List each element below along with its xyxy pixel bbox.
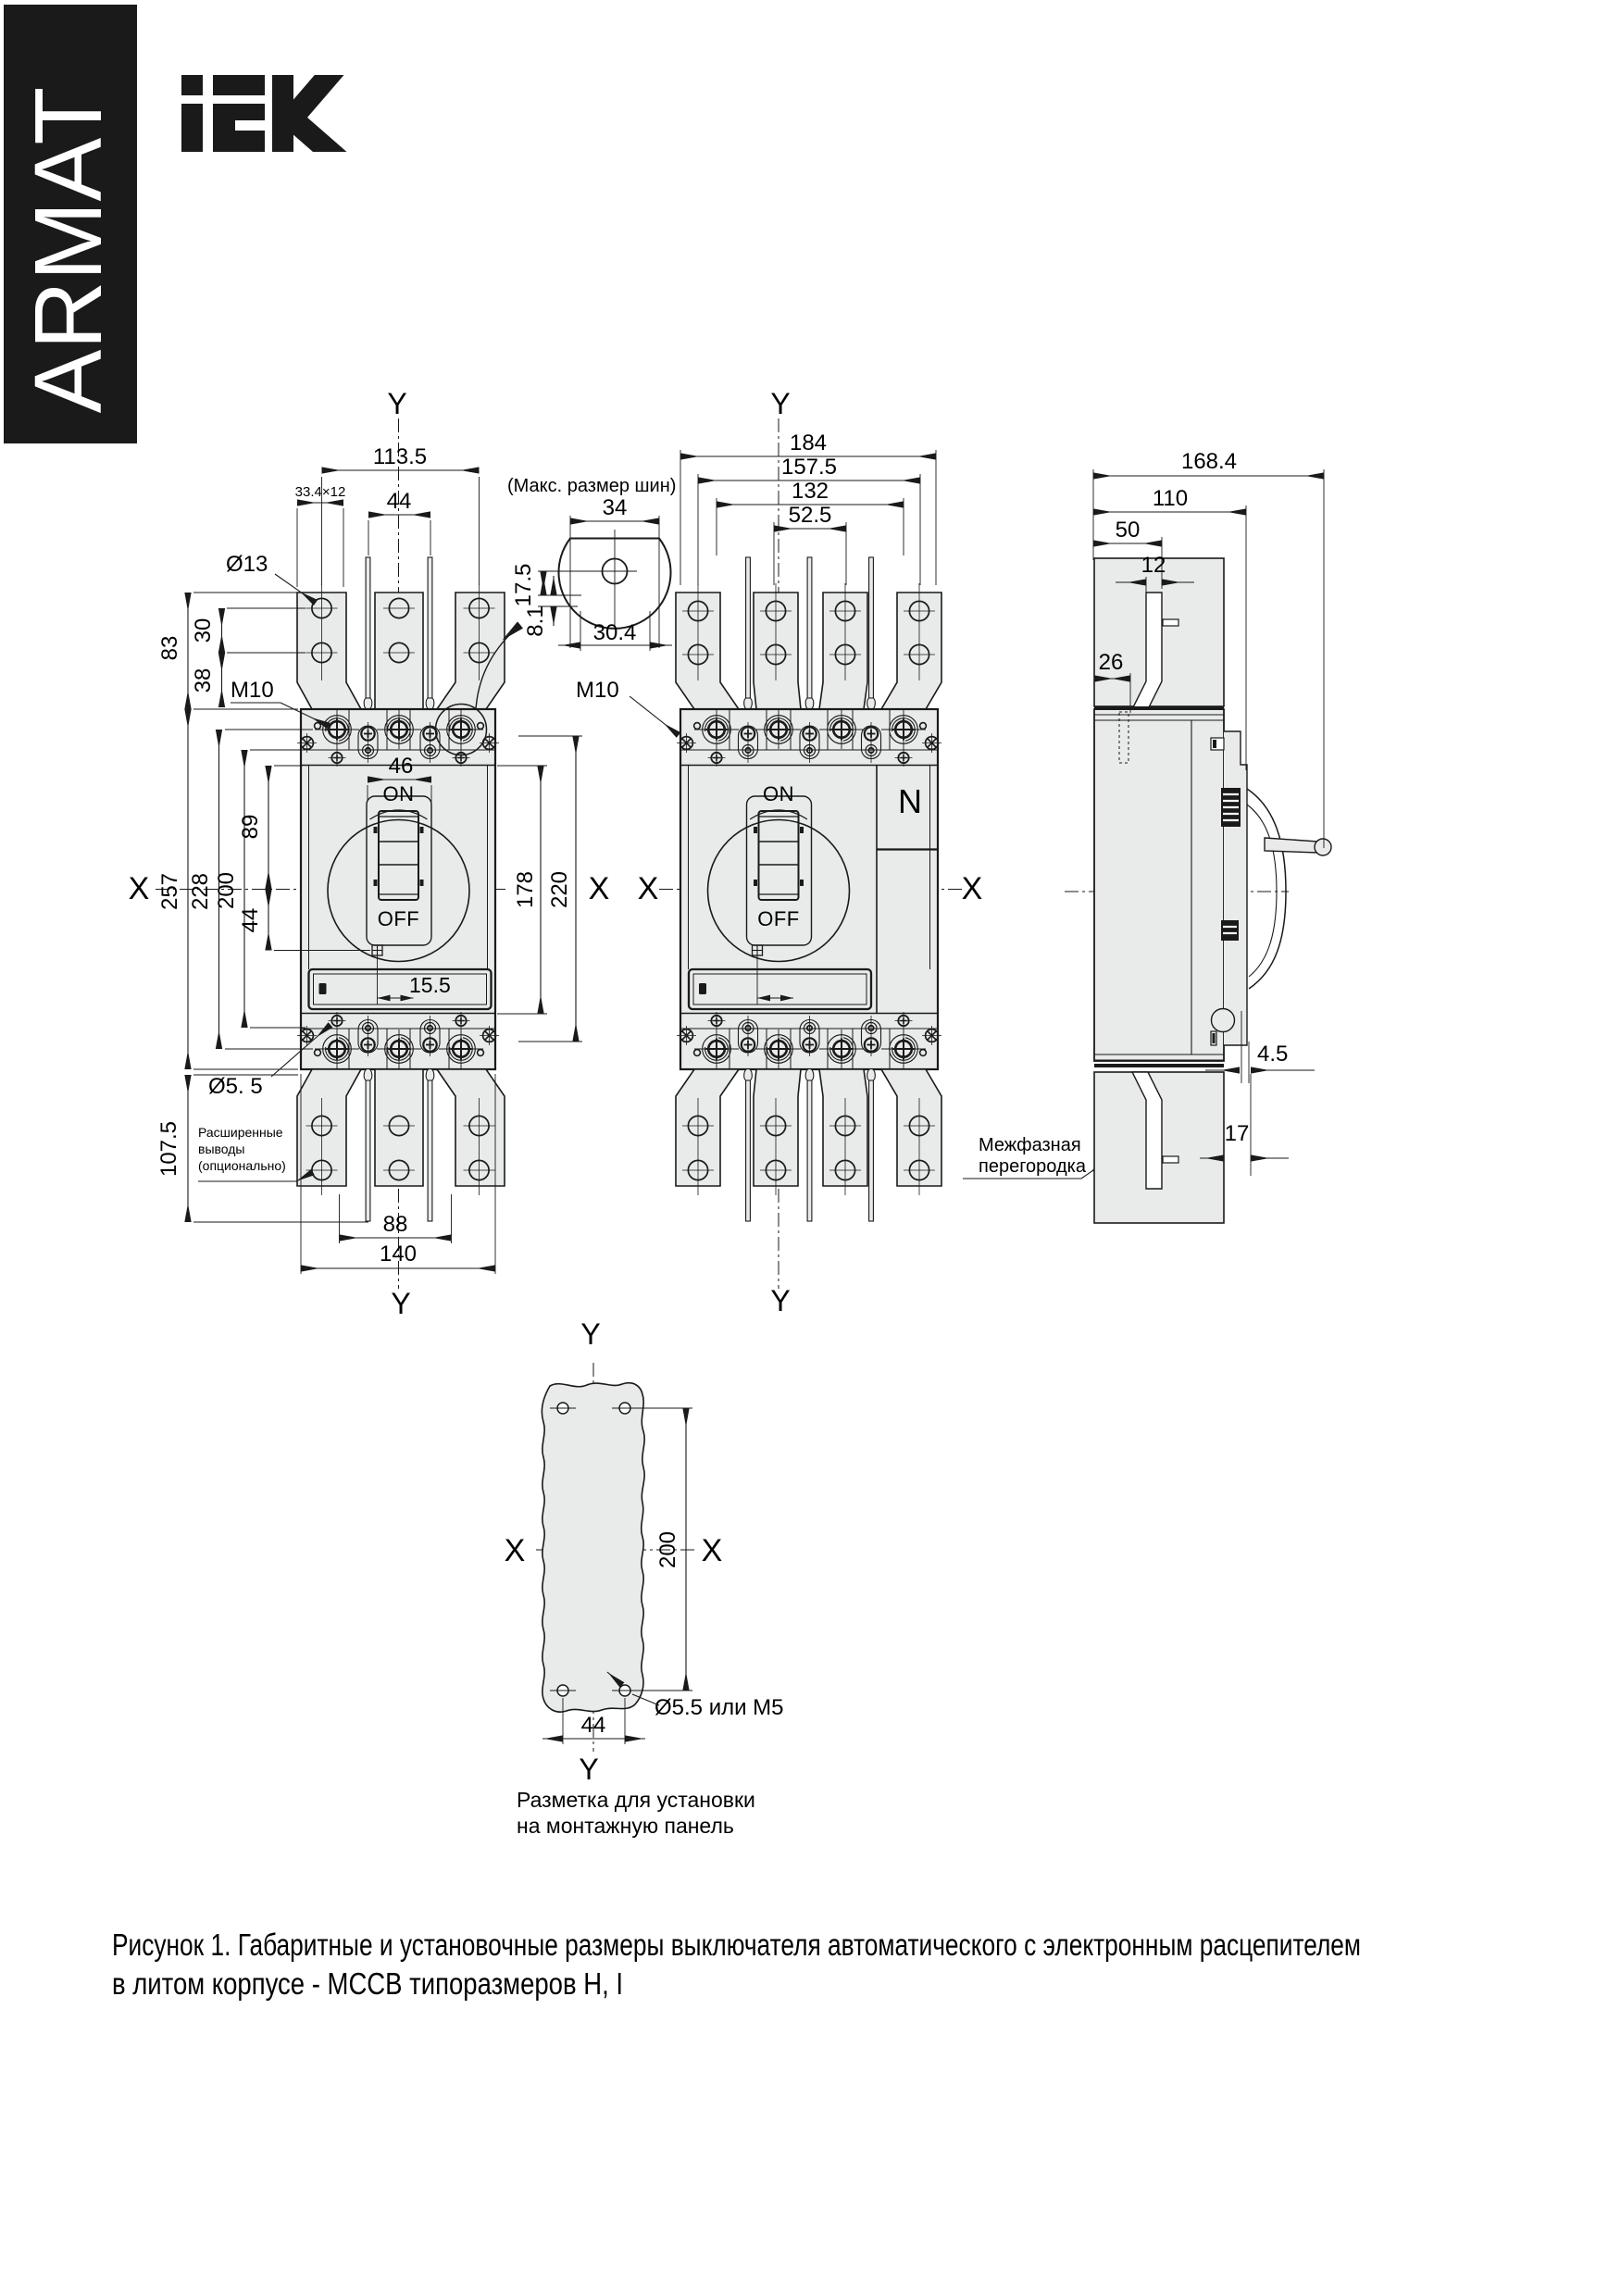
svg-text:113.5: 113.5 [373, 444, 427, 469]
svg-text:132: 132 [792, 479, 829, 504]
svg-text:88: 88 [383, 1212, 408, 1237]
svg-text:228: 228 [188, 873, 213, 910]
svg-text:46: 46 [389, 754, 414, 779]
svg-text:107.5: 107.5 [156, 1121, 181, 1177]
svg-text:Y: Y [770, 1284, 790, 1317]
svg-text:X: X [589, 871, 610, 906]
svg-text:157.5: 157.5 [781, 455, 837, 480]
svg-text:X: X [962, 871, 983, 906]
svg-text:(Макс. размер шин): (Макс. размер шин) [507, 476, 676, 496]
svg-text:в литом корпусе - МССВ типораз: в литом корпусе - МССВ типоразмеров H, I [112, 1966, 623, 2001]
svg-text:50: 50 [1116, 518, 1141, 543]
svg-text:на монтажную панель: на монтажную панель [517, 1814, 734, 1838]
svg-text:M10: M10 [231, 678, 274, 703]
svg-text:200: 200 [655, 1531, 680, 1568]
svg-text:30: 30 [191, 618, 216, 643]
svg-text:89: 89 [238, 815, 263, 840]
svg-text:8.1: 8.1 [523, 605, 548, 636]
svg-text:Разметка для установки: Разметка для установки [517, 1788, 755, 1812]
svg-text:(опционально): (опционально) [198, 1158, 286, 1173]
svg-text:Y: Y [770, 387, 790, 420]
svg-text:257: 257 [157, 873, 182, 910]
svg-text:Ø5. 5: Ø5. 5 [208, 1074, 263, 1099]
svg-text:4.5: 4.5 [1257, 1042, 1288, 1067]
svg-text:Y: Y [580, 1317, 600, 1351]
svg-text:17.5: 17.5 [511, 564, 536, 607]
svg-text:26: 26 [1099, 650, 1124, 675]
svg-text:44: 44 [238, 908, 263, 933]
svg-text:Расширенные: Расширенные [198, 1125, 283, 1140]
svg-text:12: 12 [1141, 553, 1166, 578]
svg-text:Ø5.5 или M5: Ø5.5 или M5 [655, 1695, 784, 1720]
svg-text:220: 220 [547, 871, 572, 908]
svg-text:178: 178 [513, 871, 538, 908]
svg-text:44: 44 [387, 489, 412, 514]
svg-text:Y: Y [387, 387, 406, 420]
svg-text:52.5: 52.5 [789, 503, 832, 528]
svg-text:X: X [638, 871, 659, 906]
svg-text:X: X [505, 1533, 526, 1568]
svg-text:110: 110 [1153, 486, 1188, 511]
svg-text:X: X [129, 871, 150, 906]
svg-text:выводы: выводы [198, 1142, 245, 1156]
svg-text:Y: Y [579, 1753, 598, 1786]
svg-text:140: 140 [380, 1242, 417, 1267]
svg-text:Межфазная: Межфазная [979, 1135, 1081, 1155]
svg-text:ARMAT: ARMAT [15, 87, 121, 414]
svg-text:33.4×12: 33.4×12 [295, 484, 346, 500]
svg-text:168.4: 168.4 [1181, 449, 1237, 474]
svg-text:Ø13: Ø13 [226, 552, 268, 577]
svg-text:X: X [702, 1533, 723, 1568]
svg-text:Рисунок 1. Габаритные и устано: Рисунок 1. Габаритные и установочные раз… [112, 1928, 1361, 1962]
svg-text:перегородка: перегородка [979, 1156, 1087, 1177]
svg-text:M10: M10 [576, 678, 619, 703]
svg-text:Y: Y [391, 1287, 410, 1320]
svg-text:83: 83 [157, 636, 182, 661]
svg-text:30.4: 30.4 [593, 620, 637, 645]
svg-text:44: 44 [581, 1713, 606, 1738]
svg-text:15.5: 15.5 [409, 973, 451, 997]
svg-text:38: 38 [191, 668, 216, 693]
svg-text:184: 184 [790, 430, 827, 455]
svg-text:200: 200 [214, 872, 239, 909]
svg-text:17: 17 [1225, 1121, 1250, 1146]
svg-text:N: N [898, 782, 922, 820]
svg-text:34: 34 [603, 495, 628, 520]
